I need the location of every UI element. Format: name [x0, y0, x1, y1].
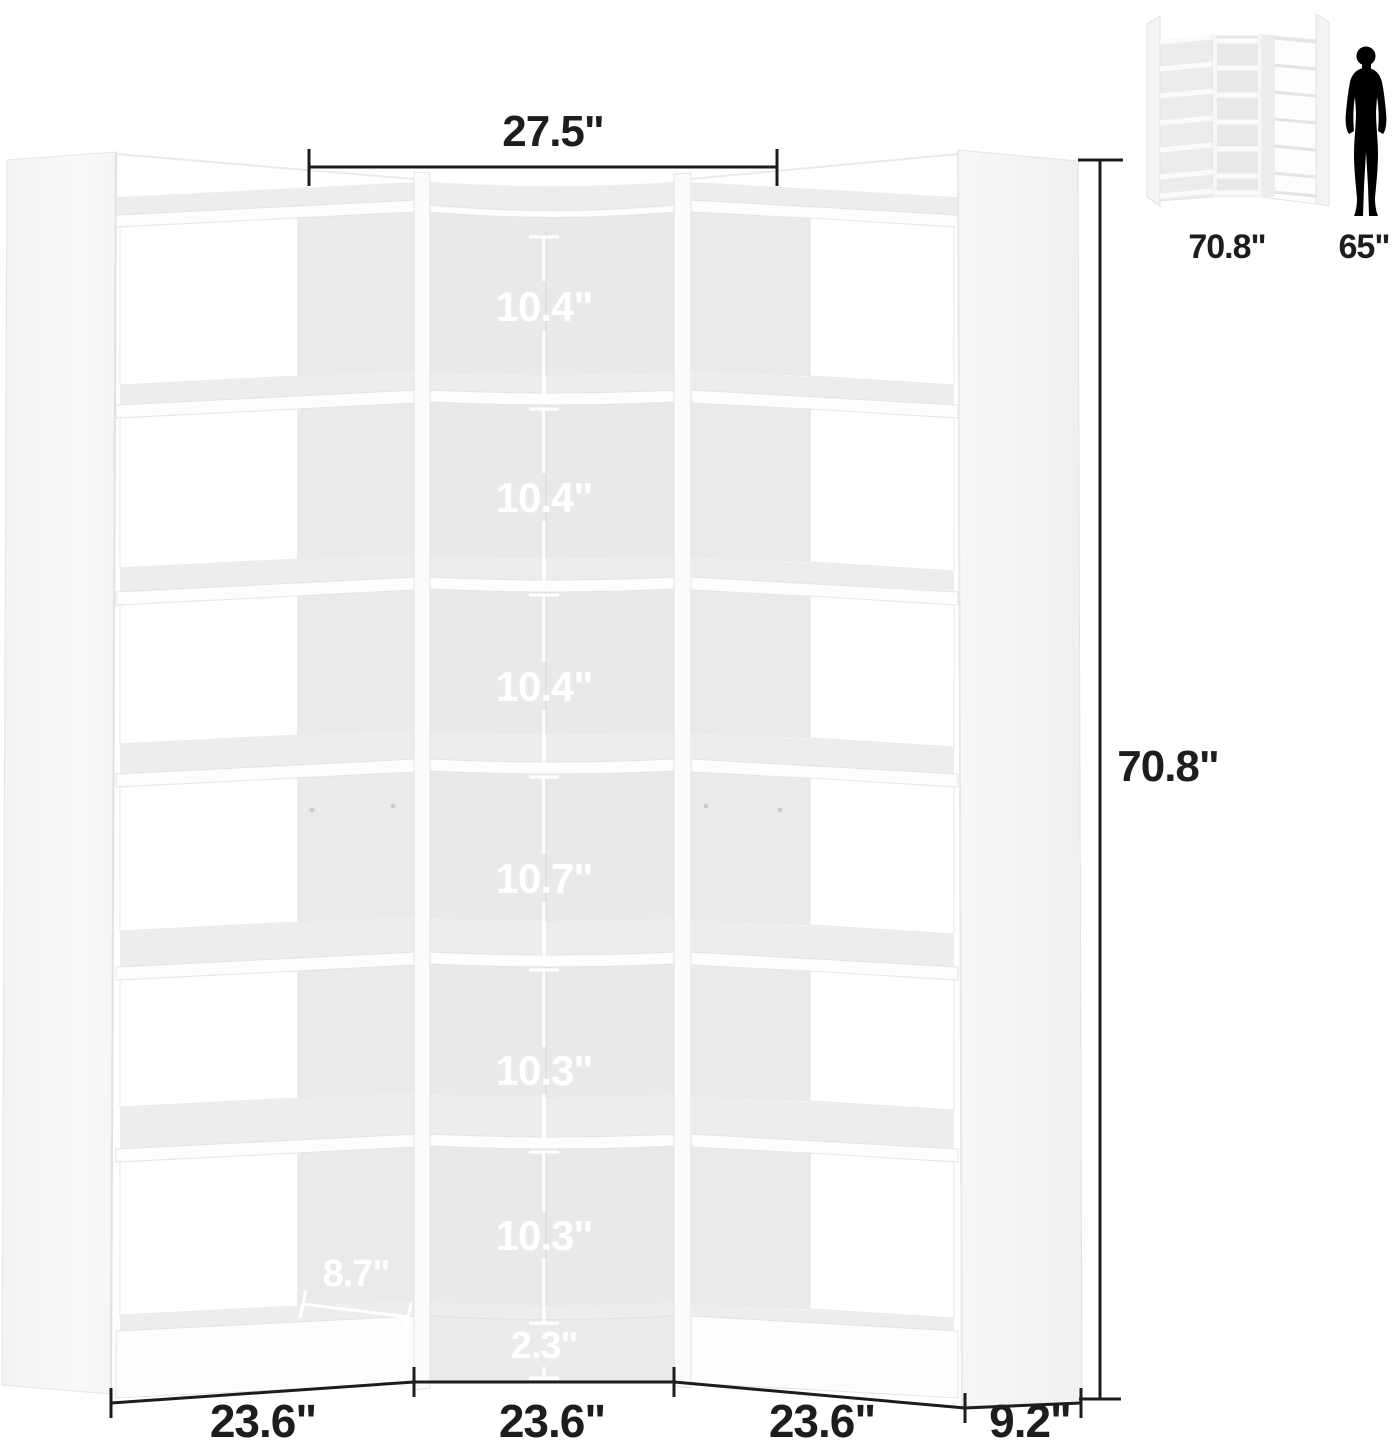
- left-wing: [116, 154, 417, 1398]
- silhouette-body: [1346, 68, 1387, 216]
- diagram-canvas: 27.5" 70.8" 10.4" 10.4" 10.4" 10.7" 10.3…: [0, 0, 1395, 1444]
- inset-left-panel: [1147, 16, 1160, 206]
- dim-label-spacing-4: 10.7": [496, 855, 593, 902]
- partition-face: [691, 1147, 810, 1309]
- left-end-panel: [2, 152, 116, 1394]
- partition-face: [691, 403, 810, 562]
- dim-label-spacing-1: 10.4": [496, 283, 593, 330]
- dim-label-spacing-2: 10.4": [496, 474, 593, 521]
- shelf-opening: [120, 218, 298, 385]
- inset-right-partition: [1262, 35, 1275, 197]
- dim-label-total-height: 70.8": [1117, 742, 1219, 791]
- partition-face: [298, 403, 414, 559]
- center-back-panel: [430, 589, 674, 735]
- shelf-surface: [430, 732, 674, 762]
- dim-top-width: 27.5": [309, 107, 777, 186]
- shelf-pin-hole: [778, 808, 783, 813]
- right-end-panel-face: [958, 150, 1082, 1406]
- center-bay: [414, 172, 691, 1390]
- dim-label-side-depth: 8.7": [323, 1253, 390, 1295]
- shelf-pin-hole: [310, 808, 315, 813]
- person-silhouette: [1346, 47, 1387, 217]
- product-dimension-diagram: 27.5" 70.8" 10.4" 10.4" 10.4" 10.7" 10.3…: [0, 0, 1395, 1444]
- partition-face: [691, 590, 810, 738]
- right-end-panel: [958, 150, 1082, 1406]
- shelf-opening: [810, 409, 954, 571]
- inset-mini-bookshelf: [1147, 14, 1329, 206]
- dim-label-section-width-3: 23.6": [769, 1395, 875, 1444]
- dim-label-base-clearance: 2.3": [511, 1325, 578, 1367]
- shelf-pin-hole: [704, 804, 709, 809]
- dim-label-spacing-6: 10.3": [496, 1212, 593, 1259]
- shelf-surface: [430, 182, 674, 211]
- right-wing: [691, 154, 958, 1398]
- shelf-opening: [810, 971, 954, 1110]
- shelf-opening: [120, 971, 298, 1107]
- partition-face: [691, 772, 810, 925]
- shelf-opening: [810, 778, 954, 934]
- dim-label-section-width-2: 23.6": [499, 1395, 605, 1444]
- left-end-panel-face: [2, 152, 116, 1394]
- dim-label-section-width-1: 23.6": [210, 1395, 316, 1444]
- shelf-opening: [810, 218, 954, 385]
- partition-face: [691, 212, 810, 376]
- shelf-opening: [120, 778, 298, 931]
- shelf-opening: [810, 1153, 954, 1318]
- partition-face: [298, 965, 414, 1098]
- partition-face: [298, 772, 414, 922]
- shelf-opening: [120, 1153, 298, 1315]
- dim-total-height: 70.8": [1078, 160, 1219, 1399]
- center-left-post: [414, 172, 430, 1390]
- shelf-surface: [430, 373, 674, 393]
- dim-label-end-panel-depth: 9.2": [989, 1395, 1071, 1444]
- shelf-surface: [430, 556, 674, 580]
- inset-center-bay: [1213, 36, 1262, 196]
- partition-face: [298, 590, 414, 735]
- shelf-pin-hole: [391, 804, 396, 809]
- partition-face: [298, 212, 414, 376]
- dim-label-spacing-3: 10.4": [496, 663, 593, 710]
- shelf-opening: [120, 409, 298, 568]
- dim-label-spacing-5: 10.3": [496, 1047, 593, 1094]
- shelf-opening: [120, 596, 298, 744]
- shelf-surface: [430, 1095, 674, 1137]
- shelf-opening: [810, 596, 954, 747]
- scale-inset: 70.8" 65": [1147, 14, 1389, 266]
- partition-face: [691, 965, 810, 1101]
- inset-right-panel: [1316, 14, 1329, 206]
- inset-label-person-height: 65": [1339, 228, 1390, 266]
- center-right-post: [674, 173, 691, 1388]
- inset-label-unit-height: 70.8": [1188, 228, 1265, 266]
- dim-label-top-width: 27.5": [502, 107, 604, 156]
- shelf-surface: [430, 919, 674, 955]
